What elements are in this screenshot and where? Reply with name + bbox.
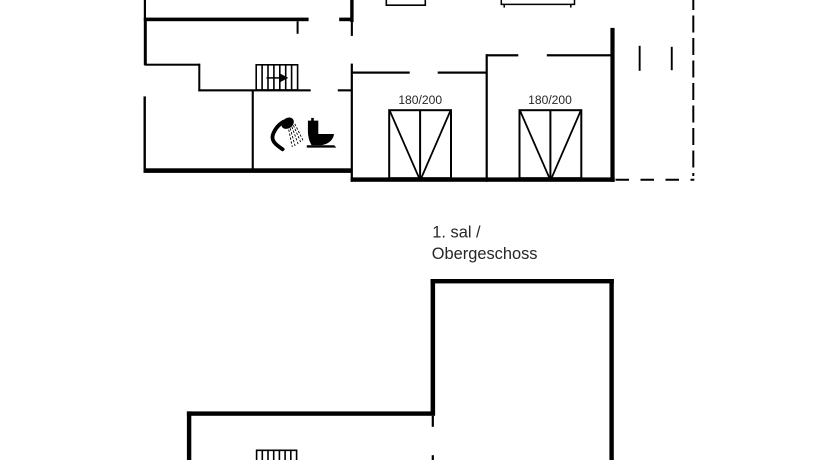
svg-text:1. sal /: 1. sal /: [432, 224, 481, 242]
svg-text:180/200: 180/200: [398, 93, 442, 107]
svg-text:180/200: 180/200: [528, 93, 572, 107]
svg-text:Obergeschoss: Obergeschoss: [432, 245, 538, 263]
